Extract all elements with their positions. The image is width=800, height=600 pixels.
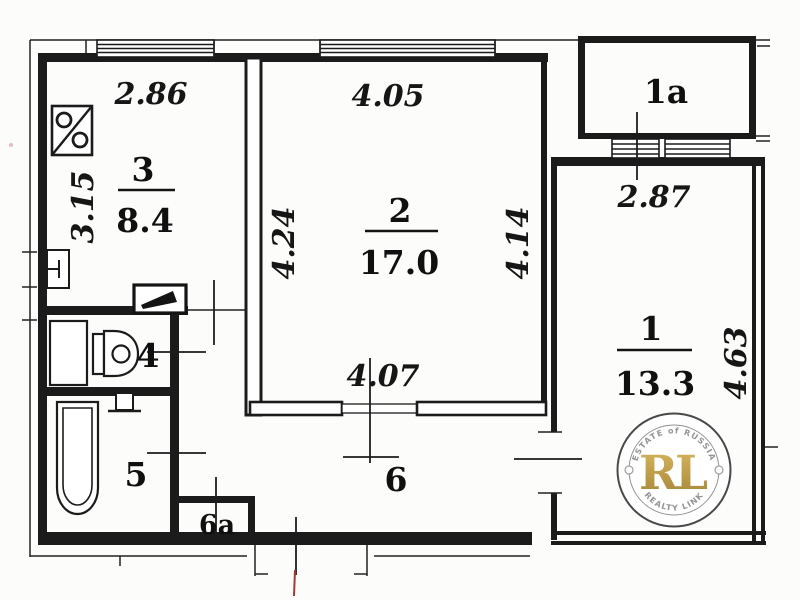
bathtub-icon	[57, 402, 98, 514]
room-3-number: 3	[132, 150, 155, 189]
dim-kitchen-left: 3.15	[66, 170, 101, 243]
room-5-number: 5	[125, 455, 148, 494]
wall-right-outer	[761, 158, 765, 545]
wall-balcony-right	[749, 36, 756, 139]
room-3-area: 8.4	[116, 201, 173, 240]
watermark-dot-right	[715, 466, 723, 474]
wall-room2-bottom-right	[417, 402, 546, 415]
wall-balcony-floor	[578, 133, 756, 139]
radiator-icon	[47, 250, 69, 288]
cabinet-icon	[50, 321, 87, 385]
watermark-badge: ESTATE of RUSSIA REALTY LINK RL	[618, 414, 731, 527]
toilet-icon	[93, 331, 138, 376]
wall-balcony-top	[578, 36, 756, 43]
wall-bottom	[38, 532, 532, 545]
watermark-monogram: RL	[639, 446, 708, 501]
room-1-number: 1	[640, 309, 663, 348]
wall-room1-bottom-outer	[551, 531, 766, 535]
room-6a-number: 6a	[199, 510, 235, 541]
floor-plan-page: 2.86 3.15 4.05 4.24 4.14 4.07 2.87 4.63 …	[0, 0, 800, 600]
room-1-area: 13.3	[615, 364, 695, 403]
dim-room1-top: 2.87	[616, 180, 690, 215]
dim-room2-left: 4.24	[267, 206, 302, 279]
watermark-dot-left	[625, 466, 633, 474]
red-pen-mark	[294, 570, 295, 596]
room-2-number: 2	[389, 191, 412, 230]
wall-room2-right	[541, 58, 547, 415]
dim-room2-bottom: 4.07	[346, 359, 419, 394]
window-balcony-left	[612, 139, 659, 158]
wall-wc-bottom	[42, 387, 179, 396]
dim-room1-right: 4.63	[719, 326, 754, 399]
wall-room2-bottom-left	[250, 402, 342, 415]
dim-kitchen-top: 2.86	[113, 77, 187, 112]
wall-balcony-left	[578, 36, 585, 139]
wall-bath-right	[170, 396, 179, 536]
stove-icon	[52, 106, 92, 155]
window-kitchen	[97, 40, 214, 57]
wall-left	[38, 53, 47, 545]
wall-closet-right	[248, 496, 255, 536]
wall-kitchen-room2	[246, 58, 261, 415]
pink-speck	[9, 143, 13, 147]
wall-closet-top	[179, 496, 255, 503]
window-room2	[320, 40, 495, 57]
window-balcony-right	[665, 139, 730, 158]
room-4-number: 4	[137, 336, 160, 375]
room-1a-number: 1a	[644, 72, 688, 111]
room-2-area: 17.0	[359, 243, 439, 282]
wall-room2-bottom-door	[342, 404, 417, 413]
kitchen-sink-icon	[134, 285, 186, 313]
wall-room1-left-upper	[551, 158, 557, 432]
wall-wc-right	[170, 315, 179, 395]
wall-room1-bottom-inner	[551, 541, 766, 545]
floor-plan-drawing: 2.86 3.15 4.05 4.24 4.14 4.07 2.87 4.63 …	[0, 0, 800, 600]
dim-room2-top: 4.05	[351, 79, 424, 114]
room-6-number: 6	[385, 460, 408, 499]
dim-room2-right: 4.14	[501, 206, 536, 279]
